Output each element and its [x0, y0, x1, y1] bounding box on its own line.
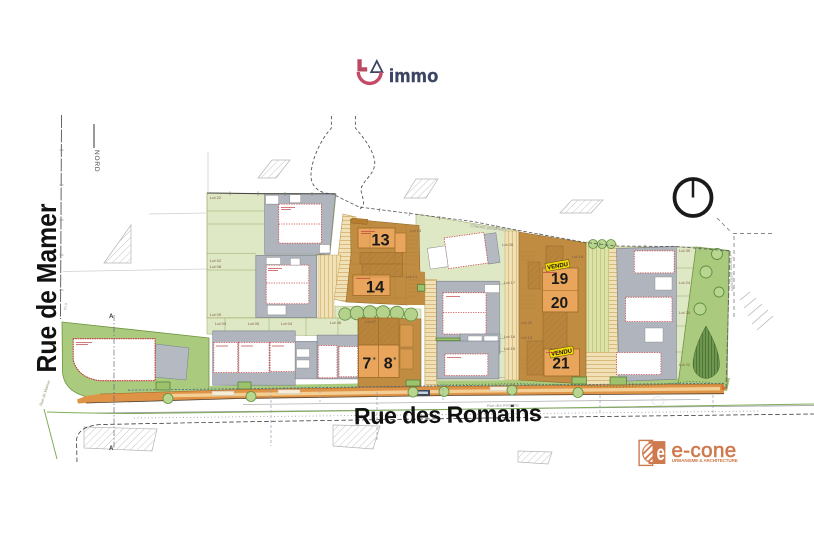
svg-text:URBANISME & ARCHITECTURE: URBANISME & ARCHITECTURE — [672, 458, 738, 463]
svg-text:Lot 46: Lot 46 — [330, 320, 342, 325]
svg-text:Lot 15: Lot 15 — [504, 346, 516, 351]
svg-text:Lot 13: Lot 13 — [410, 228, 422, 233]
svg-text:Lot 17: Lot 17 — [504, 280, 516, 285]
svg-text:Lot 18: Lot 18 — [572, 254, 584, 259]
svg-text:Rue de Mamer: Rue de Mamer — [31, 203, 62, 372]
svg-text:Lot 14: Lot 14 — [406, 274, 418, 279]
svg-text:immo: immo — [389, 66, 439, 86]
svg-text:Lot 04: Lot 04 — [281, 321, 293, 326]
svg-text:Lot 30: Lot 30 — [679, 248, 691, 253]
svg-text:7: 7 — [362, 355, 371, 372]
svg-text:21: 21 — [552, 356, 570, 373]
svg-text:A: A — [109, 446, 114, 452]
svg-text:A: A — [109, 314, 114, 320]
svg-text:Lot 13: Lot 13 — [521, 335, 533, 340]
svg-text:Rue des Romains: Rue des Romains — [487, 402, 519, 408]
svg-text:Lot 47: Lot 47 — [365, 319, 377, 324]
svg-text:Lot 24: Lot 24 — [679, 280, 691, 285]
svg-text:19: 19 — [551, 271, 569, 288]
svg-text:Lot 03: Lot 03 — [215, 321, 227, 326]
svg-text:Lot 20: Lot 20 — [521, 320, 533, 325]
svg-text:Lot 02: Lot 02 — [210, 258, 222, 263]
svg-text:20: 20 — [551, 295, 568, 312]
svg-text:NORD: NORD — [93, 150, 100, 172]
svg-text:e: e — [657, 441, 665, 464]
svg-text:Lot 25: Lot 25 — [679, 310, 691, 315]
svg-text:13: 13 — [371, 232, 389, 250]
svg-text:Lot 16: Lot 16 — [504, 334, 516, 339]
svg-text:Lot 22: Lot 22 — [210, 195, 222, 200]
svg-text:Lot 08: Lot 08 — [210, 264, 222, 269]
svg-text:Lot 09: Lot 09 — [210, 312, 222, 317]
svg-text:Lot 22: Lot 22 — [679, 362, 691, 367]
svg-text:8: 8 — [384, 356, 393, 373]
svg-text:Lot 05: Lot 05 — [248, 321, 260, 326]
svg-text:Lot 28: Lot 28 — [502, 242, 514, 247]
svg-text:14: 14 — [366, 279, 385, 297]
